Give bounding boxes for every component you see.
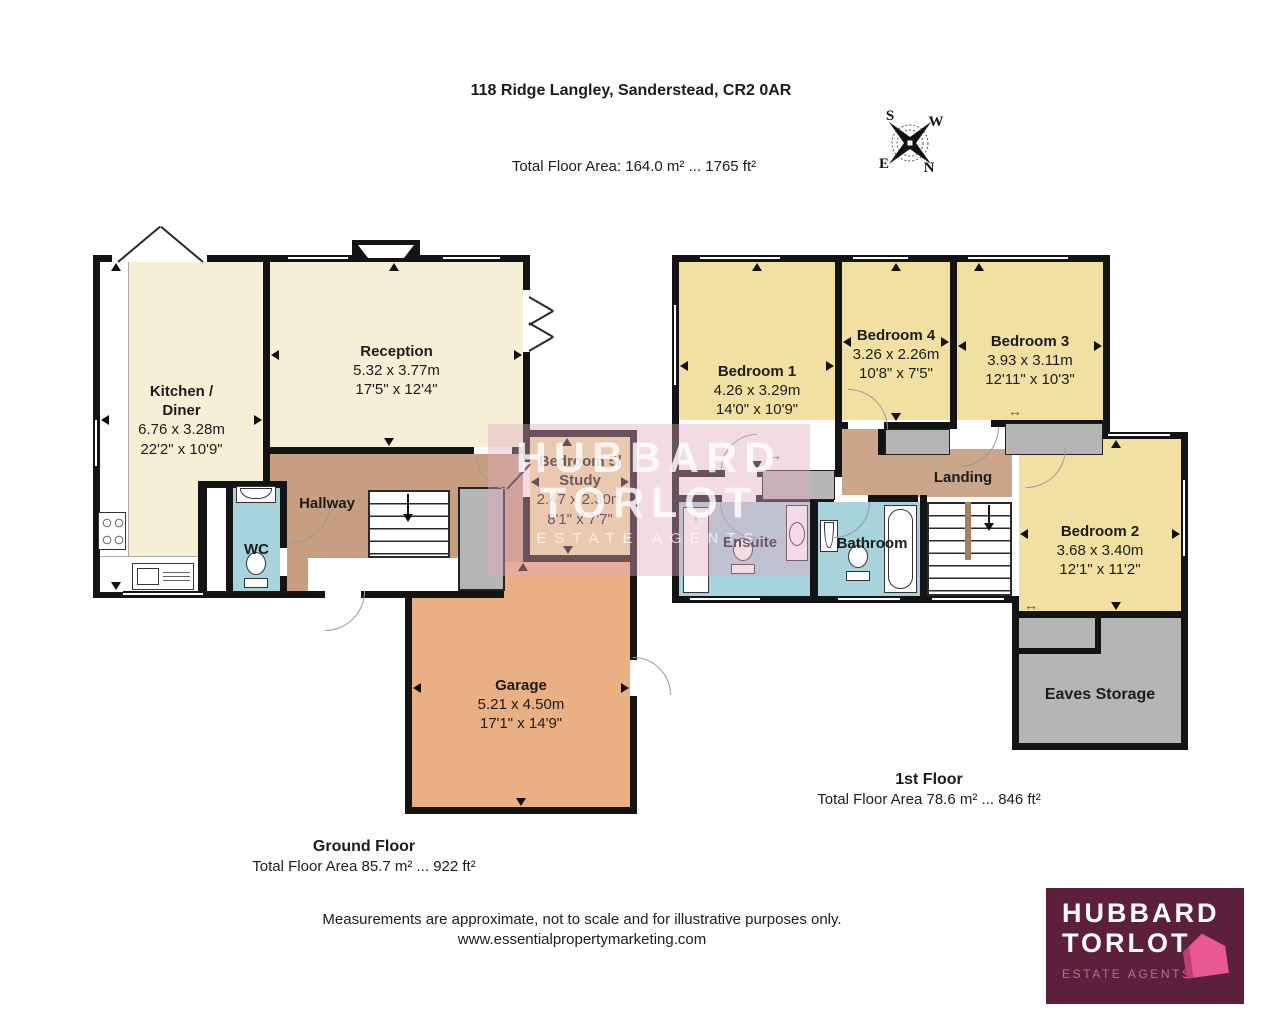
door-gap — [957, 420, 991, 427]
wall — [263, 255, 270, 454]
measure-arrow-icon — [514, 350, 522, 360]
kitchen-extent — [100, 262, 263, 591]
page-title: 118 Ridge Langley, Sanderstead, CR2 0AR — [306, 82, 956, 100]
wall — [810, 495, 818, 603]
door-gap — [474, 447, 512, 454]
garage-extent — [504, 562, 630, 598]
compass-icon: S W E N — [860, 95, 960, 190]
floor-area: Total Floor Area 85.7 m² ... 922 ft² — [139, 858, 589, 875]
room-name: Ensuite — [700, 533, 800, 552]
compass-west-label: W — [929, 114, 944, 130]
measure-arrow-icon — [518, 563, 528, 571]
bedroom3-extent — [957, 262, 1103, 420]
floor-name: 1st Floor — [704, 771, 1154, 789]
stairs-rail — [965, 502, 971, 560]
landing-label: Landing — [908, 468, 1018, 487]
floor-area: Total Floor Area 78.6 m² ... 846 ft² — [704, 791, 1154, 808]
measure-arrow-icon — [101, 415, 109, 425]
measure-arrow-icon — [752, 263, 762, 271]
french-door-icon — [529, 322, 554, 338]
room-name: Landing — [908, 468, 1018, 487]
wall — [1019, 648, 1097, 654]
door-gap — [725, 470, 757, 477]
compass-east-label: E — [879, 156, 889, 172]
compass-south-label: S — [886, 108, 894, 124]
window — [838, 596, 900, 603]
measure-arrow-icon — [254, 415, 262, 425]
window — [700, 255, 780, 262]
compass-north-label: N — [924, 160, 935, 176]
logo-text: HUBBARD — [1062, 898, 1244, 928]
window — [690, 596, 760, 603]
measure-arrow-icon — [621, 683, 629, 693]
disclaimer: Measurements are approximate, not to sca… — [232, 910, 932, 951]
bedroom2-extent — [1019, 439, 1181, 611]
window — [1181, 480, 1188, 556]
bedroom1-extent — [679, 262, 835, 470]
window — [932, 596, 1004, 603]
room-name: Hallway — [282, 494, 372, 513]
bedroom4-extent — [842, 262, 950, 422]
french-door-icon — [529, 336, 554, 352]
window — [672, 305, 679, 385]
door-gap — [722, 495, 756, 502]
agency-logo: HUBBARD TORLOT ESTATE AGENTS — [1046, 888, 1244, 1004]
measure-arrow-icon — [413, 683, 421, 693]
measure-arrow-icon — [843, 337, 851, 347]
ensuite-label: Ensuite — [700, 533, 800, 552]
house-icon — [1174, 926, 1232, 984]
cupboard — [458, 487, 505, 591]
first-floor-caption: 1st Floor Total Floor Area 78.6 m² ... 8… — [704, 771, 1154, 808]
floorplan-page: 118 Ridge Langley, Sanderstead, CR2 0AR … — [0, 0, 1280, 1024]
wardrobe — [885, 429, 950, 455]
measure-arrow-icon — [111, 582, 121, 590]
stairs-arrow-icon — [407, 494, 409, 520]
window — [123, 591, 203, 598]
eaves-storage-label: Eaves Storage — [1019, 685, 1181, 705]
floor-name: Ground Floor — [139, 838, 589, 856]
measure-arrow-icon — [826, 361, 834, 371]
measure-arrow-icon — [1020, 529, 1028, 539]
wall — [878, 429, 885, 455]
reception-extent — [270, 262, 523, 447]
measure-arrow-icon — [1172, 529, 1180, 539]
measure-arrow-icon — [111, 263, 121, 271]
measure-arrow-icon — [680, 361, 688, 371]
measure-arrow-icon — [1094, 341, 1102, 351]
measure-arrow-icon — [891, 263, 901, 271]
window — [288, 255, 348, 262]
door-gap — [280, 548, 287, 576]
measure-arrow-icon — [621, 477, 629, 487]
wall — [1012, 611, 1188, 618]
measure-arrow-icon — [271, 350, 279, 360]
door-gap — [834, 495, 868, 502]
french-door-icon — [529, 296, 554, 312]
window — [853, 255, 908, 262]
window — [93, 420, 100, 466]
hallway-label: Hallway — [282, 494, 372, 513]
wardrobe — [762, 470, 835, 500]
room-name: Eaves Storage — [1019, 685, 1181, 705]
measure-arrow-icon — [389, 263, 399, 271]
measure-arrow-icon — [562, 438, 572, 446]
porch-floor — [308, 558, 458, 591]
window — [443, 255, 500, 262]
measure-arrow-icon — [974, 263, 984, 271]
disclaimer-text: Measurements are approximate, not to sca… — [232, 910, 932, 930]
measure-arrow-icon — [563, 546, 573, 554]
measure-arrow-icon — [891, 413, 901, 421]
website-text: www.essentialpropertymarketing.com — [232, 930, 932, 950]
measure-arrow-icon — [384, 438, 394, 446]
bathroom-label: Bathroom — [822, 534, 922, 553]
window — [1108, 432, 1170, 439]
stairs-arrow-icon — [988, 505, 990, 529]
wall — [1095, 618, 1101, 654]
measure-arrow-icon — [1111, 440, 1121, 448]
measure-arrow-icon — [531, 477, 539, 487]
measure-arrow-icon — [516, 798, 526, 806]
ground-floor-caption: Ground Floor Total Floor Area 85.7 m² ..… — [139, 838, 589, 875]
garage-extent — [412, 598, 630, 807]
measure-arrow-icon — [958, 341, 966, 351]
bedroom5-extent — [530, 437, 630, 555]
window — [968, 255, 1068, 262]
measure-arrow-icon — [1111, 602, 1121, 610]
measure-arrow-icon — [941, 337, 949, 347]
room-name: Bathroom — [822, 534, 922, 553]
measure-arrow-icon — [752, 461, 762, 469]
